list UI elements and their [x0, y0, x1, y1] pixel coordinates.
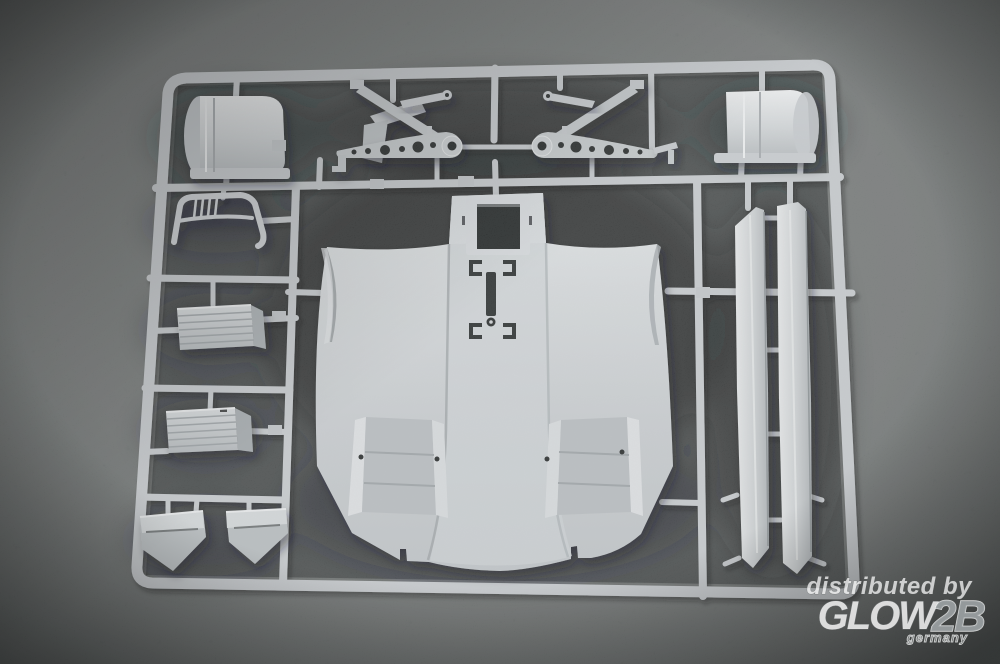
watermark-sublabel: germany	[906, 630, 968, 645]
vignette	[0, 0, 1000, 664]
sprue-photo-canvas: distributed by GLOW 2B germany	[0, 0, 1000, 664]
watermark: distributed by GLOW 2B germany	[806, 573, 985, 645]
kit-sprue-photo: distributed by GLOW 2B germany	[0, 0, 1000, 664]
